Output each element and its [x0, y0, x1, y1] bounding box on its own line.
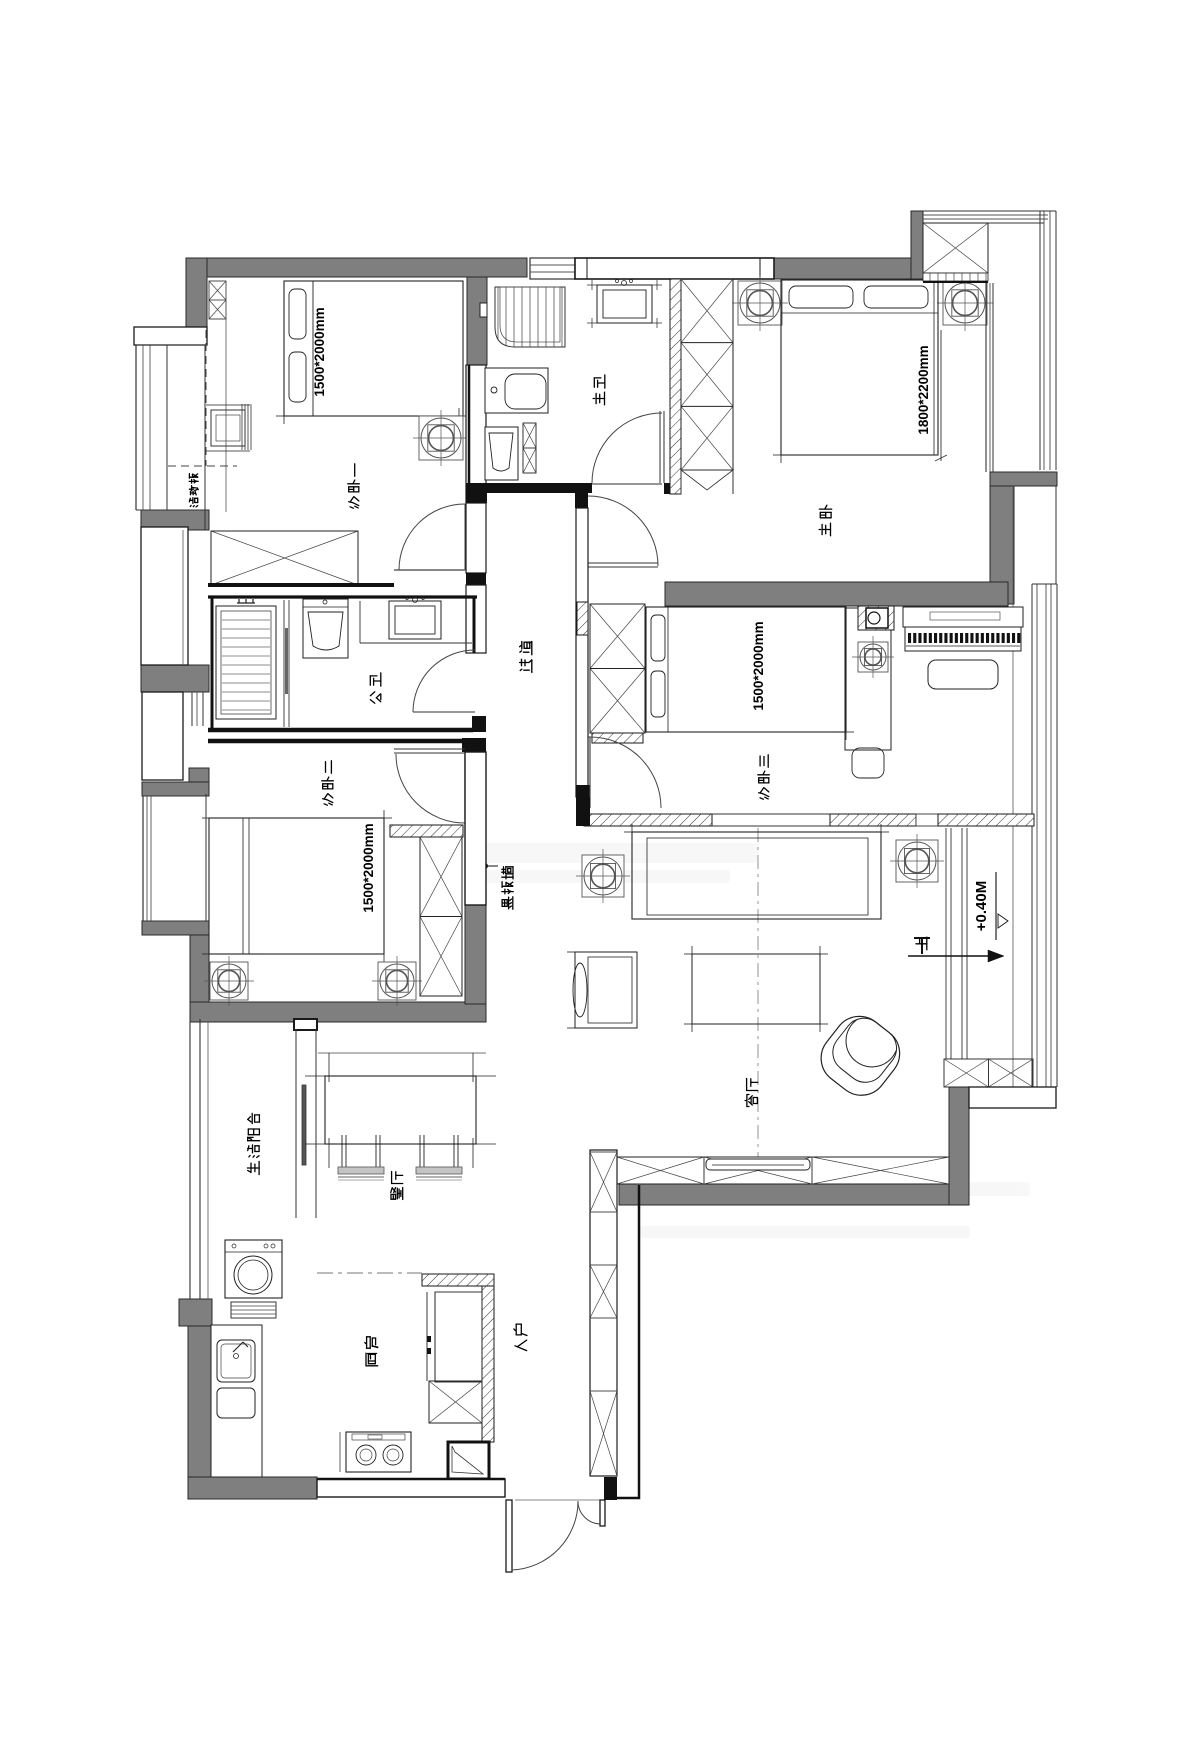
svg-text:1500*2000mm: 1500*2000mm	[312, 307, 327, 396]
svg-text:1500*2000mm: 1500*2000mm	[361, 823, 376, 912]
svg-text:1500*2000mm: 1500*2000mm	[751, 621, 766, 710]
svg-text:+0.40M: +0.40M	[973, 881, 990, 931]
svg-text:1800*2200mm: 1800*2200mm	[916, 345, 931, 434]
